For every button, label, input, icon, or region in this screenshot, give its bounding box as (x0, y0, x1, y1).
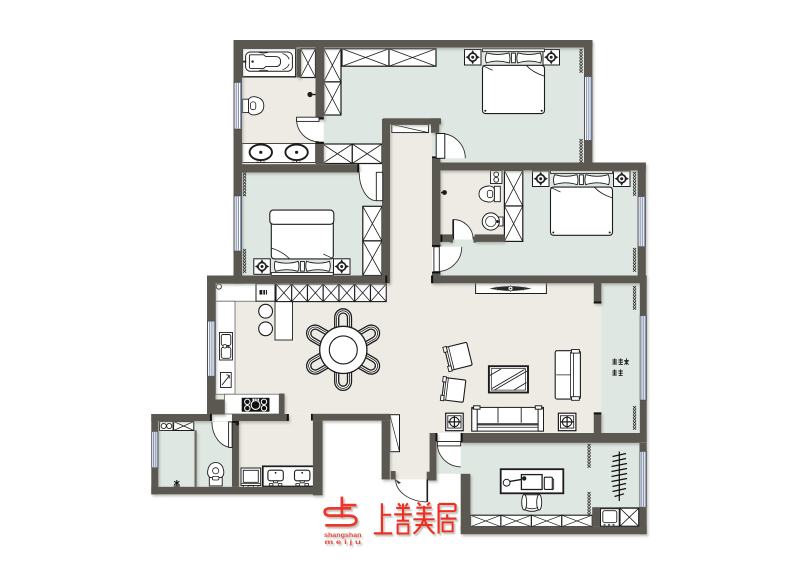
svg-text:m e i j u: m e i j u (325, 539, 362, 546)
